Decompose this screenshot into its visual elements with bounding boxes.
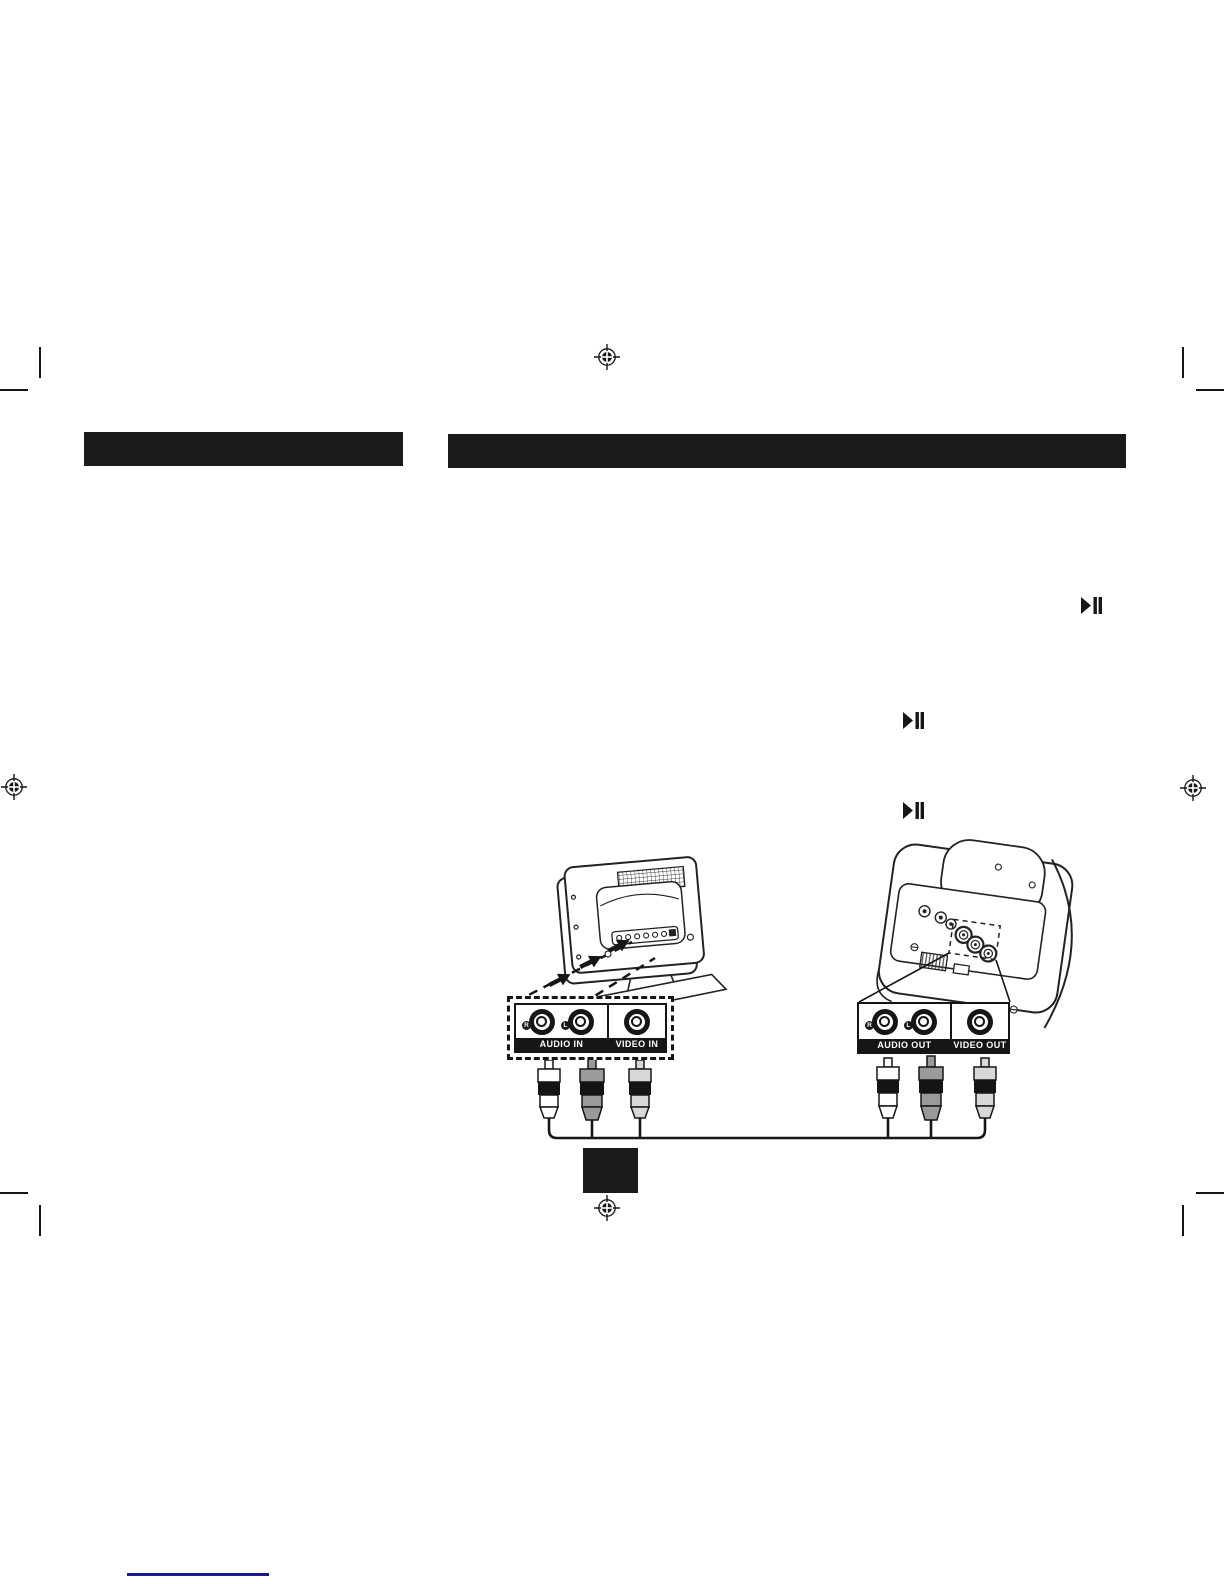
video-in-section: VIDEO IN <box>609 1005 665 1051</box>
rca-plug-audio-left-gray <box>580 1058 604 1120</box>
crop-mark-bottom-left-horizontal <box>0 1192 28 1194</box>
crop-mark-bottom-left-vertical <box>39 1205 41 1236</box>
left-channel-label: L <box>561 1021 570 1030</box>
audio-out-section: R L AUDIO OUT <box>859 1004 952 1052</box>
registration-mark-icon <box>1179 774 1207 802</box>
rca-plug-audio-right-white <box>877 1058 899 1118</box>
rca-plug-video-yellow <box>974 1058 996 1118</box>
audio-in-jack-right: R <box>529 1009 555 1035</box>
av-cable <box>549 1118 985 1138</box>
audio-in-label: AUDIO IN <box>516 1038 607 1051</box>
rca-plug-audio-left-gray <box>919 1056 943 1120</box>
right-channel-label: R <box>522 1021 531 1030</box>
redacted-caption-box <box>583 1148 638 1193</box>
audio-out-jack-right: R <box>872 1009 898 1035</box>
audio-out-label: AUDIO OUT <box>859 1039 950 1052</box>
audio-in-section: R L AUDIO IN <box>516 1005 609 1051</box>
crop-mark-bottom-right-vertical <box>1182 1205 1184 1236</box>
audio-out-jack-left: L <box>911 1009 937 1035</box>
tv-rear-illustration <box>515 855 727 1017</box>
footer-underline <box>127 1573 269 1576</box>
play-pause-icon <box>903 802 925 819</box>
video-out-jack <box>967 1009 993 1035</box>
crop-mark-top-right-horizontal <box>1196 389 1224 391</box>
play-pause-icon <box>903 712 925 729</box>
audio-in-jack-left: L <box>568 1009 594 1035</box>
right-channel-label: R <box>865 1021 874 1030</box>
manual-page: R L AUDIO IN VIDEO IN <box>0 0 1224 1584</box>
video-in-jack <box>624 1009 650 1035</box>
dvd-player-rear-illustration <box>859 830 1084 1030</box>
section-title-bar-left <box>84 432 403 466</box>
crop-mark-top-left-vertical <box>39 347 41 378</box>
crop-mark-top-left-horizontal <box>0 389 28 391</box>
rca-plug-audio-right-white <box>538 1060 560 1118</box>
registration-mark-icon <box>0 773 28 801</box>
left-channel-label: L <box>904 1021 913 1030</box>
crop-mark-top-right-vertical <box>1182 347 1184 378</box>
section-title-bar-right <box>448 434 1126 468</box>
rca-plug-video-yellow <box>629 1060 651 1118</box>
video-in-label: VIDEO IN <box>609 1038 665 1051</box>
crop-mark-bottom-right-horizontal <box>1196 1192 1224 1194</box>
registration-mark-icon <box>593 343 621 371</box>
play-pause-icon <box>1081 597 1103 614</box>
video-out-section: VIDEO OUT <box>952 1004 1008 1052</box>
player-av-output-panel: R L AUDIO OUT VIDEO OUT <box>857 1002 1010 1054</box>
tv-av-input-panel: R L AUDIO IN VIDEO IN <box>507 996 674 1060</box>
video-out-label: VIDEO OUT <box>952 1039 1008 1052</box>
